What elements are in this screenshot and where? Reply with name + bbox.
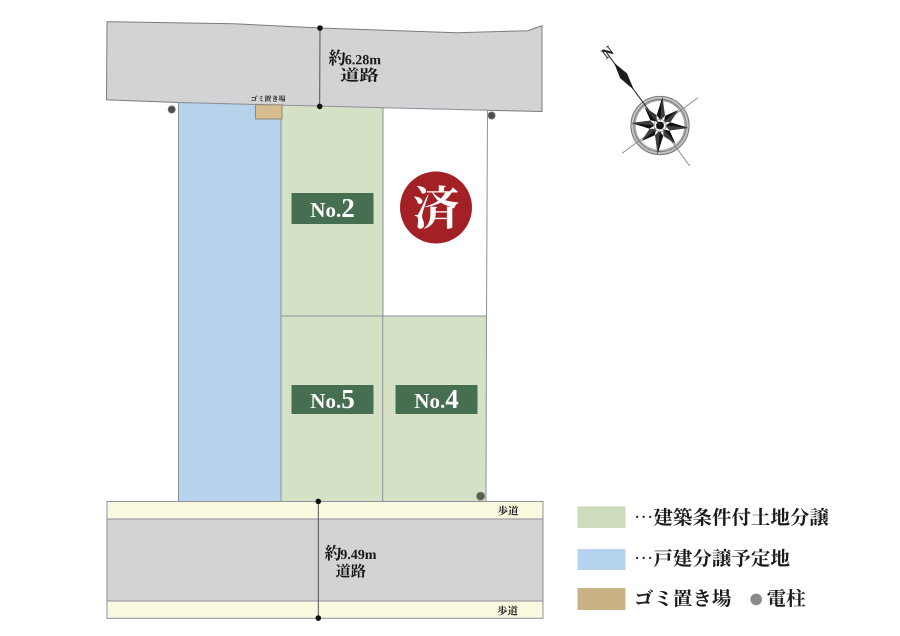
- svg-text:No.2: No.2: [310, 193, 354, 223]
- svg-text:No.5: No.5: [310, 384, 354, 414]
- svg-text:No.4: No.4: [414, 384, 458, 414]
